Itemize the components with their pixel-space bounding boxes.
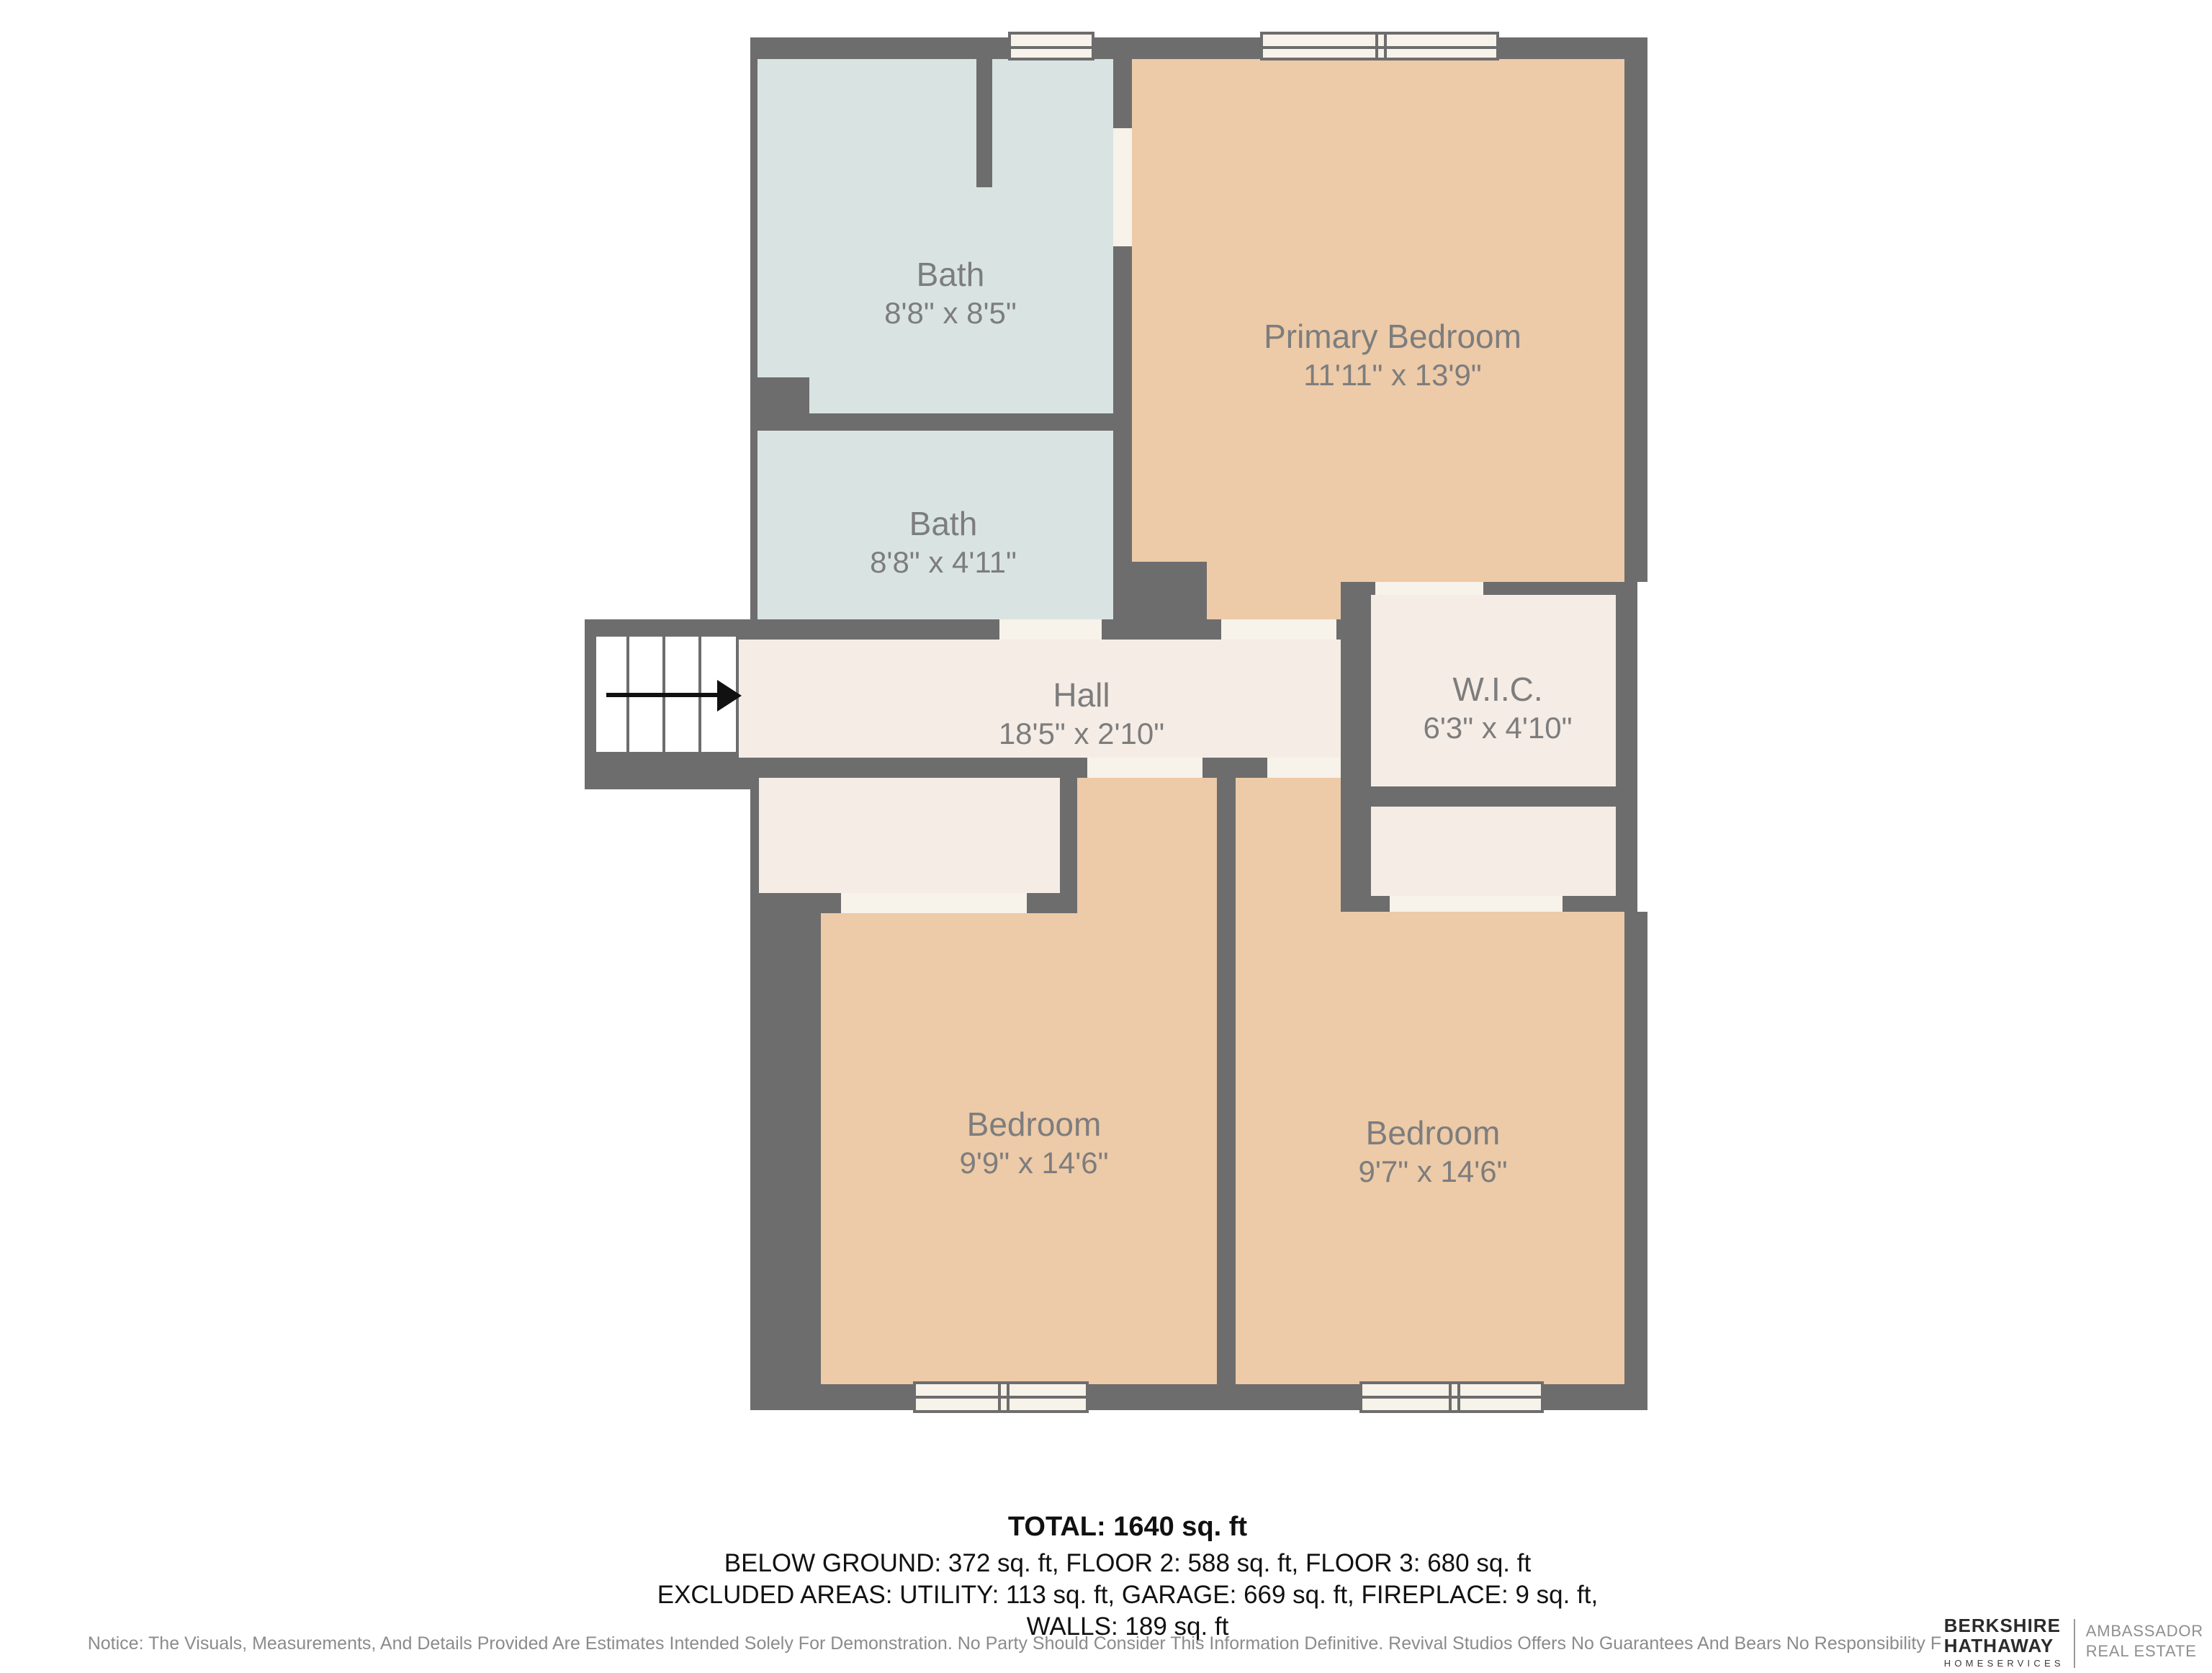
brand-name-line1: BERKSHIRE (1944, 1616, 2064, 1637)
brand-division-line1: AMBASSADOR (2086, 1623, 2203, 1643)
door-opening-wic (1375, 582, 1483, 595)
door-opening-hall-bedroom-right (1267, 758, 1341, 778)
room-name: Bath (884, 254, 1017, 296)
disclaimer-notice: Notice: The Visuals, Measurements, And D… (37, 1633, 2212, 1654)
bath-top-partition-stub (976, 59, 992, 187)
room-bedroom-right-entry (1236, 778, 1341, 912)
room-dimensions: 8'8" x 8'5" (884, 296, 1017, 334)
room-dimensions: 8'8" x 4'11" (870, 545, 1017, 583)
bath-top-corner-notch (757, 377, 809, 413)
label-wic: W.I.C. 6'3" x 4'10" (1424, 669, 1573, 748)
room-dimensions: 6'3" x 4'10" (1424, 711, 1573, 749)
label-bath-top: Bath 8'8" x 8'5" (884, 254, 1017, 333)
door-opening-hall-primary (1221, 619, 1336, 640)
room-closet-right (1371, 807, 1616, 896)
label-bedroom-right: Bedroom 9'7" x 14'6" (1359, 1113, 1508, 1192)
floor-areas: BELOW GROUND: 372 sq. ft, FLOOR 2: 588 s… (43, 1548, 2212, 1579)
window-primary-double (1260, 32, 1499, 60)
window-bedroom-left-double (913, 1381, 1089, 1413)
primary-bedroom-notch (1132, 562, 1207, 619)
door-opening-bath-primary (1113, 128, 1132, 246)
stairs-direction-arrow-shaft (606, 693, 721, 697)
room-bath-top (757, 59, 1113, 413)
door-opening-hall-bath (999, 619, 1102, 640)
room-name: Bedroom (960, 1104, 1109, 1146)
window-bedroom-right-double (1359, 1381, 1544, 1413)
room-dimensions: 11'11" x 13'9" (1264, 358, 1521, 396)
label-primary-bedroom: Primary Bedroom 11'11" x 13'9" (1264, 316, 1521, 395)
excluded-areas: EXCLUDED AREAS: UTILITY: 113 sq. ft, GAR… (43, 1580, 2212, 1610)
floorplan-page: Bath 8'8" x 8'5" Bath 8'8" x 4'11" Prima… (0, 0, 2212, 1659)
area-summary: TOTAL: 1640 sq. ft BELOW GROUND: 372 sq.… (43, 1512, 2212, 1643)
brand-divider (2074, 1619, 2076, 1668)
room-dimensions: 18'5" x 2'10" (999, 717, 1164, 755)
window-bath-top (1008, 32, 1094, 60)
room-dimensions: 9'9" x 14'6" (960, 1146, 1109, 1184)
label-hall: Hall 18'5" x 2'10" (999, 675, 1164, 754)
brand-logo: BERKSHIRE HATHAWAY HOMESERVICES AMBASSAD… (1941, 1613, 2206, 1673)
door-opening-hall-bedroom-left (1087, 758, 1202, 778)
label-bedroom-left: Bedroom 9'9" x 14'6" (960, 1104, 1109, 1183)
brand-division-block: AMBASSADOR REAL ESTATE (2086, 1623, 2203, 1663)
building-right-inset (1637, 582, 1647, 912)
brand-name-line2: HATHAWAY (1944, 1637, 2064, 1658)
room-name: Hall (999, 675, 1164, 717)
stairs-direction-arrow-icon (717, 679, 742, 711)
room-name: Bath (870, 503, 1017, 545)
room-name: Primary Bedroom (1264, 316, 1521, 358)
door-opening-closet-left (841, 893, 1027, 913)
room-dimensions: 9'7" x 14'6" (1359, 1154, 1508, 1193)
brand-name-block: BERKSHIRE HATHAWAY HOMESERVICES (1944, 1616, 2064, 1670)
page-scaler: Bath 8'8" x 8'5" Bath 8'8" x 4'11" Prima… (0, 0, 2212, 1659)
room-closet-left (759, 778, 1060, 893)
brand-division-line2: REAL ESTATE (2086, 1643, 2203, 1664)
door-opening-closet-right (1390, 896, 1563, 913)
label-bath-mid: Bath 8'8" x 4'11" (870, 503, 1017, 583)
room-name: Bedroom (1359, 1113, 1508, 1154)
room-bedroom-left-entry (1077, 778, 1217, 913)
total-area: TOTAL: 1640 sq. ft (43, 1512, 2212, 1544)
room-name: W.I.C. (1424, 669, 1573, 711)
